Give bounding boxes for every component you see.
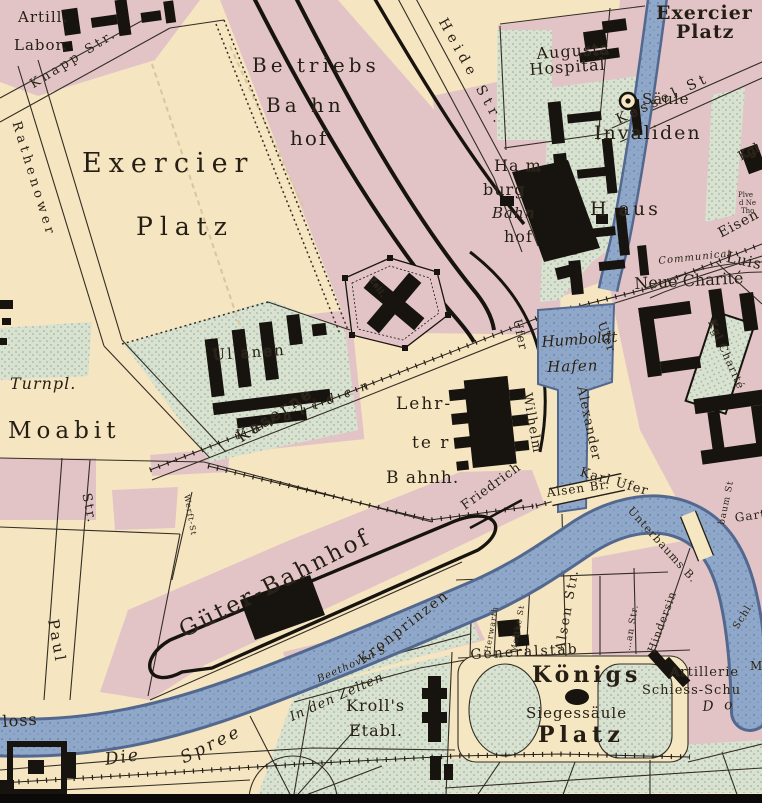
siegessaeule-column-icon <box>565 689 589 705</box>
map-canvas: Artill.Labor.Knapp Str.RathenowerExercie… <box>0 0 762 803</box>
map-edge-bar <box>0 794 762 803</box>
map-drawing <box>0 0 762 803</box>
